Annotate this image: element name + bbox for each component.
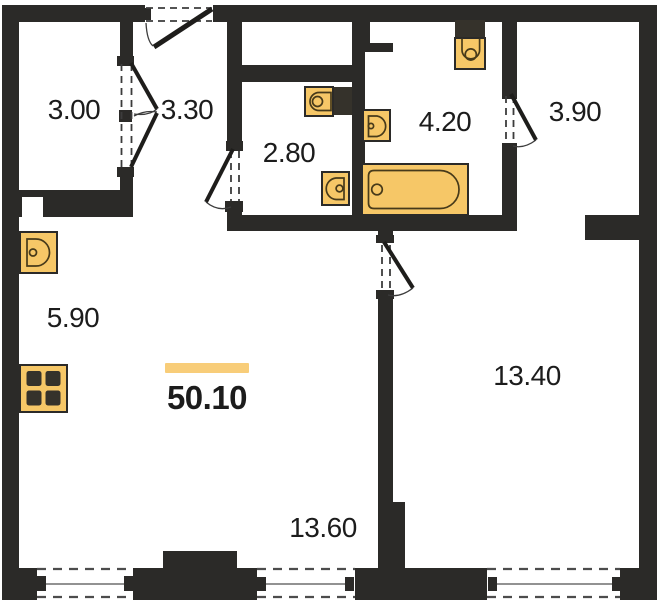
bathtub-icon — [362, 164, 468, 215]
floor-plan-canvas — [0, 0, 659, 600]
stove-icon — [20, 365, 67, 412]
label-closet-area: 3.00 — [48, 94, 101, 126]
washbasin-icon — [363, 110, 390, 141]
washbasin-icon — [322, 172, 349, 205]
wc-door — [206, 149, 239, 209]
total-area-accent-bar — [165, 363, 249, 373]
label-bathroom-area: 4.20 — [419, 106, 472, 138]
kitchen-sink-icon — [20, 232, 57, 273]
label-wc-area: 2.80 — [263, 137, 316, 169]
bedroom-door — [382, 242, 413, 296]
entrance-door — [146, 8, 212, 47]
label-dressing-area: 3.90 — [549, 96, 602, 128]
toilet-icon — [455, 20, 485, 69]
label-kitchen-area: 5.90 — [47, 302, 100, 334]
bathroom-door — [506, 94, 536, 147]
toilet-icon — [305, 87, 352, 116]
label-living-area: 13.60 — [289, 512, 357, 544]
label-bedroom-area: 13.40 — [493, 360, 561, 392]
floor-plan: 3.00 3.30 2.80 4.20 3.90 5.90 13.40 13.6… — [0, 0, 659, 600]
label-hallway-area: 3.30 — [161, 94, 214, 126]
total-area-label: 50.10 — [167, 379, 247, 417]
